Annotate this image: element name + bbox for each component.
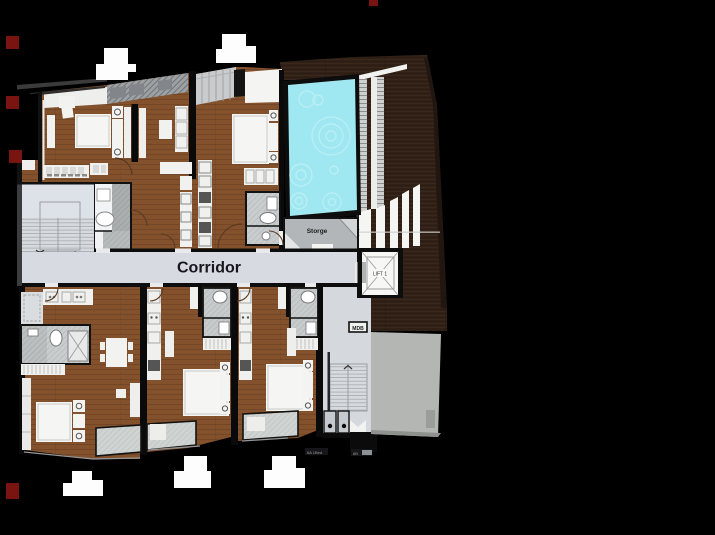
svg-text:LIFT 1: LIFT 1 [373,272,388,278]
svg-text:6B: 6B [353,451,358,456]
svg-text:6A 1Bed: 6A 1Bed [307,450,322,455]
svg-text:Corridor: Corridor [177,260,241,277]
svg-text:Storge: Storge [307,228,328,235]
svg-text:MDB: MDB [352,326,364,332]
